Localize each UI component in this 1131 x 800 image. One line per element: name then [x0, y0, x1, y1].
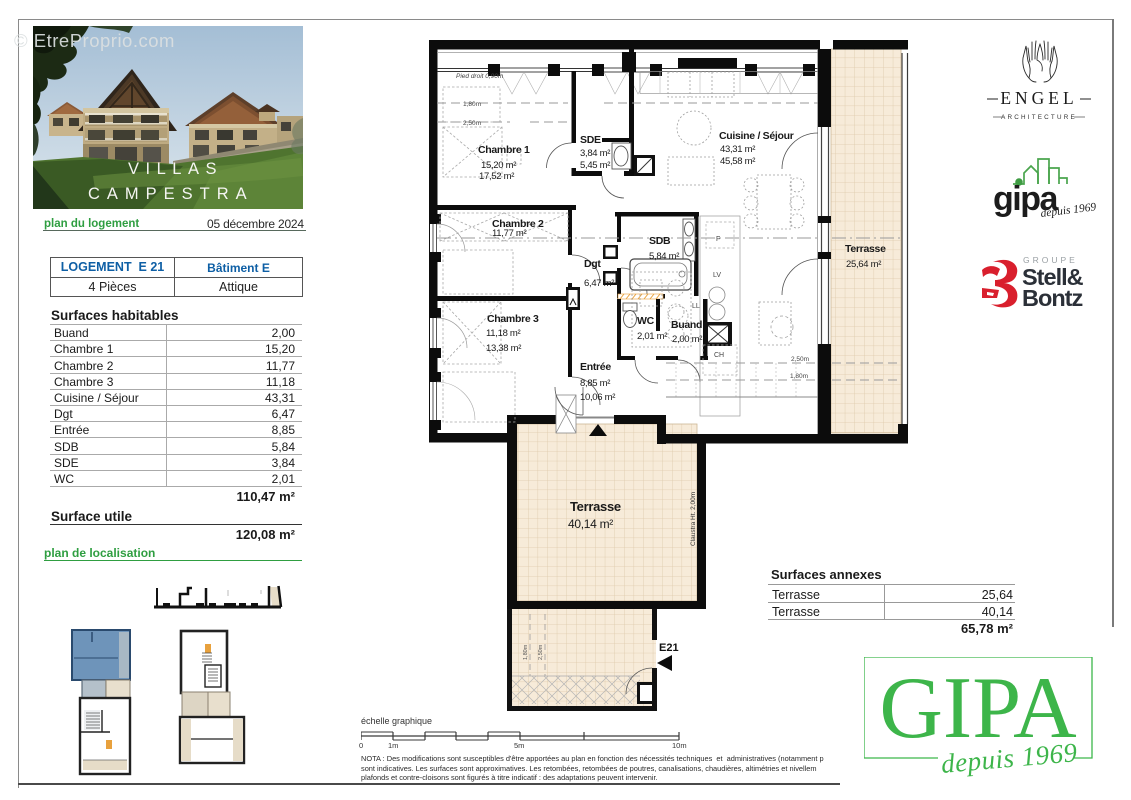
- svg-text:3,84 m²: 3,84 m²: [580, 148, 610, 159]
- svg-text:LV: LV: [713, 272, 721, 279]
- svg-text:ARCHITECTURE: ARCHITECTURE: [1001, 114, 1077, 121]
- svg-text:2,00 m²: 2,00 m²: [672, 334, 702, 345]
- svg-text:43,31 m²: 43,31 m²: [720, 144, 755, 155]
- svg-text:Cuisine / Séjour: Cuisine / Séjour: [719, 130, 794, 142]
- svg-text:Terrasse: Terrasse: [845, 243, 886, 255]
- svg-text:5,84 m²: 5,84 m²: [649, 251, 679, 262]
- svg-text:2,50m: 2,50m: [538, 644, 544, 660]
- svg-text:Chambre 3: Chambre 3: [487, 313, 539, 325]
- svg-text:1,80m: 1,80m: [463, 101, 481, 108]
- svg-text:WC: WC: [637, 315, 655, 327]
- svg-text:45,58 m²: 45,58 m²: [720, 156, 755, 167]
- svg-text:5,45 m²: 5,45 m²: [580, 160, 610, 171]
- svg-text:1,80m: 1,80m: [790, 373, 808, 380]
- svg-text:17,52 m²: 17,52 m²: [479, 171, 514, 182]
- svg-text:2,50m: 2,50m: [791, 356, 809, 363]
- svg-text:11,77 m²: 11,77 m²: [492, 228, 527, 239]
- svg-text:F: F: [716, 236, 720, 243]
- svg-text:2,01 m²: 2,01 m²: [637, 331, 667, 342]
- svg-text:Chambre 1: Chambre 1: [478, 144, 530, 156]
- svg-text:Dgt: Dgt: [584, 258, 601, 270]
- svg-text:1,80m: 1,80m: [523, 644, 529, 660]
- svg-text:2,50m: 2,50m: [463, 120, 481, 127]
- svg-text:13,38 m²: 13,38 m²: [486, 343, 521, 354]
- svg-text:40,14 m²: 40,14 m²: [568, 517, 613, 531]
- svg-text:Claustra Ht. 2,00m: Claustra Ht. 2,00m: [690, 492, 697, 546]
- svg-text:SDB: SDB: [649, 235, 671, 247]
- svg-text:11,18 m²: 11,18 m²: [486, 328, 521, 339]
- svg-text:LL: LL: [692, 303, 700, 310]
- svg-text:15,20 m²: 15,20 m²: [481, 160, 516, 171]
- svg-text:25,64 m²: 25,64 m²: [846, 259, 881, 270]
- svg-text:Bontz: Bontz: [1022, 285, 1083, 310]
- svg-text:Entrée: Entrée: [580, 361, 611, 373]
- svg-text:6,47 m²: 6,47 m²: [584, 278, 614, 289]
- svg-text:8,85 m²: 8,85 m²: [580, 378, 610, 389]
- svg-text:CH: CH: [714, 352, 724, 359]
- svg-text:Buand: Buand: [671, 319, 702, 331]
- svg-text:SDE: SDE: [580, 134, 601, 146]
- svg-text:10,06 m²: 10,06 m²: [580, 392, 615, 403]
- svg-text:Pied droit 0,90m: Pied droit 0,90m: [456, 73, 504, 80]
- svg-text:E21: E21: [659, 642, 679, 654]
- svg-text:Terrasse: Terrasse: [570, 499, 621, 514]
- svg-text:ENGEL: ENGEL: [1000, 88, 1077, 108]
